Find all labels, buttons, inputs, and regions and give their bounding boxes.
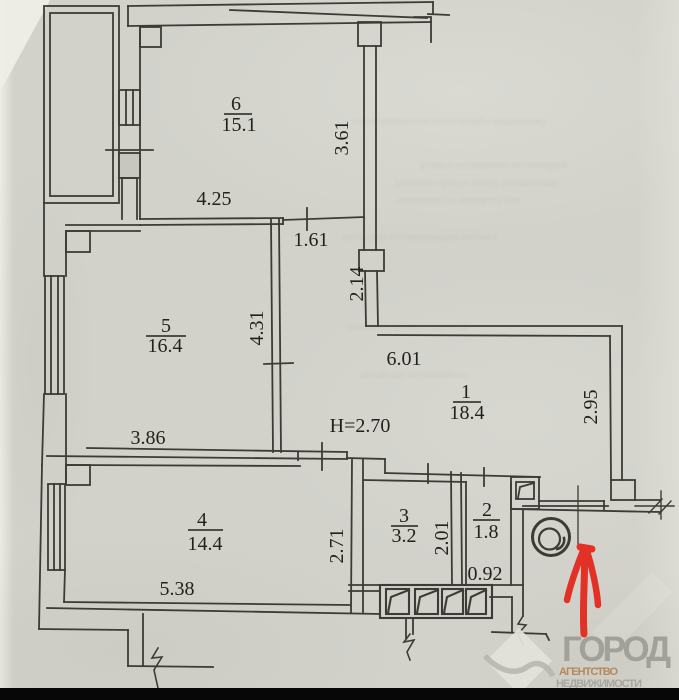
svg-text:3.61: 3.61 [331, 121, 353, 156]
svg-text:Н=2.70: Н=2.70 [330, 415, 391, 437]
svg-text:иинавовтсто мояортсу han: иинавовтсто мояортсу han [398, 194, 521, 206]
svg-text:1: 1 [461, 381, 471, 403]
svg-text:18.4: 18.4 [450, 402, 485, 424]
svg-text:0.92: 0.92 [468, 563, 503, 585]
svg-text:4.31: 4.31 [246, 311, 268, 346]
svg-text:2.95: 2.95 [580, 390, 602, 425]
svg-text:14.4: 14.4 [188, 533, 223, 555]
svg-text:3.2: 3.2 [392, 525, 417, 547]
svg-text:15.1: 15.1 [222, 114, 257, 136]
svg-text:АГЕНТСТВО: АГЕНТСТВО [559, 666, 618, 678]
svg-text:16.4: 16.4 [148, 335, 183, 357]
svg-text:2: 2 [482, 499, 492, 521]
svg-text:6: 6 [231, 93, 241, 115]
svg-text:ртомсо огонщомоп итсомиараB: ртомсо огонщомоп итсомиараB [420, 159, 568, 171]
svg-text:5: 5 [161, 315, 171, 337]
svg-text:2.71: 2.71 [326, 529, 348, 564]
svg-text:1.8: 1.8 [474, 521, 499, 543]
svg-text:6.01: 6.01 [387, 348, 422, 370]
svg-text:автсйозох итсоннебосо: автсйозох итсоннебосо [360, 369, 469, 381]
svg-text:ыноkonaз итсомижиндан вотнега: ыноkonaз итсомижиндан вотнега [342, 231, 497, 243]
svg-text:2.14: 2.14 [346, 267, 368, 302]
svg-text:1.61: 1.61 [294, 229, 329, 251]
svg-text:5.38: 5.38 [160, 578, 195, 600]
svg-text:ГОРОД: ГОРОД [562, 630, 672, 669]
svg-text:4.25: 4.25 [197, 188, 232, 210]
svg-text:4: 4 [197, 509, 207, 531]
svg-text:3.86: 3.86 [131, 427, 166, 449]
svg-text:ьтсонnavориусв амзуд огонжомзо: ьтсонnavориусв амзуд огонжомзов [395, 177, 557, 189]
svg-text:3: 3 [399, 505, 409, 527]
svg-text:2.01: 2.01 [431, 521, 453, 556]
svg-text:ынавориткепсни мовтснещбо иица: ынавориткепсни мовтснещбо иицазилаер [352, 115, 547, 127]
